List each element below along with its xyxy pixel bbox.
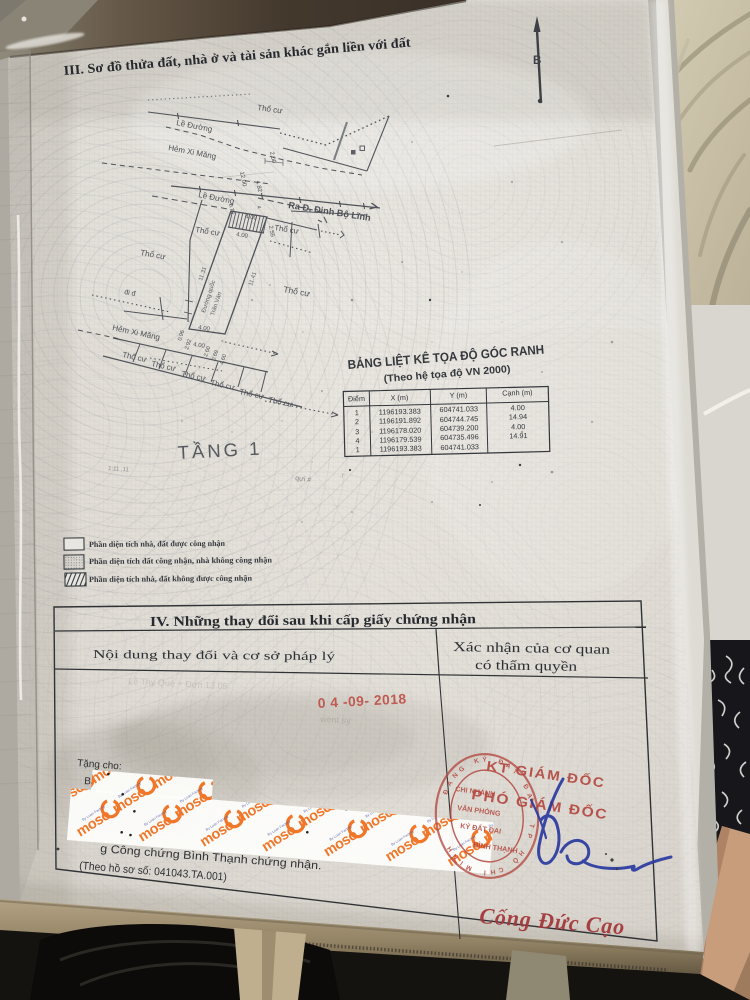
svg-text:Phần diện tích đất công nhận,: Phần diện tích đất công nhận, nhà không … [89, 555, 273, 566]
svg-text:604741.033: 604741.033 [440, 442, 479, 452]
svg-text:1: 1 [356, 445, 360, 454]
svg-text:Phần diện tích nhà, đất được c: Phần diện tích nhà, đất được công nhận [89, 539, 226, 549]
svg-text:IV. Những thay đổi sau khi cấp: IV. Những thay đổi sau khi cấp giấy chứn… [150, 611, 476, 629]
svg-text:Điểm: Điểm [348, 394, 365, 403]
svg-text:có thẩm quyền: có thẩm quyền [475, 657, 578, 674]
svg-text:Phần diện tích nhà, đất không: Phần diện tích nhà, đất không được công … [89, 574, 253, 584]
svg-text:1196191.892: 1196191.892 [379, 416, 421, 426]
svg-text:3: 3 [355, 427, 359, 436]
svg-text:604735.496: 604735.496 [440, 432, 479, 442]
svg-text:1: 1 [355, 408, 359, 417]
svg-text:1196193.383: 1196193.383 [380, 444, 422, 454]
svg-text:Xác nhận của cơ quan: Xác nhận của cơ quan [453, 639, 611, 657]
svg-text:2: 2 [355, 417, 359, 426]
svg-text:4: 4 [355, 436, 359, 445]
svg-text:Cạnh (m): Cạnh (m) [502, 388, 533, 398]
svg-text:4.00: 4.00 [511, 422, 525, 431]
svg-text:B: B [533, 55, 541, 67]
svg-text:X (m): X (m) [390, 393, 408, 402]
svg-text:Nội dung thay đổi và cơ sở phá: Nội dung thay đổi và cơ sở pháp lý [93, 647, 335, 663]
svg-text:14.94: 14.94 [509, 412, 527, 421]
svg-text:Y (m): Y (m) [449, 390, 467, 399]
svg-text:TẦNG 1: TẦNG 1 [177, 438, 263, 463]
svg-text:604741.033: 604741.033 [439, 404, 478, 414]
svg-text:14.91: 14.91 [509, 431, 527, 440]
svg-text:went sy: went sy [319, 714, 351, 726]
svg-text:4.00: 4.00 [511, 403, 525, 412]
